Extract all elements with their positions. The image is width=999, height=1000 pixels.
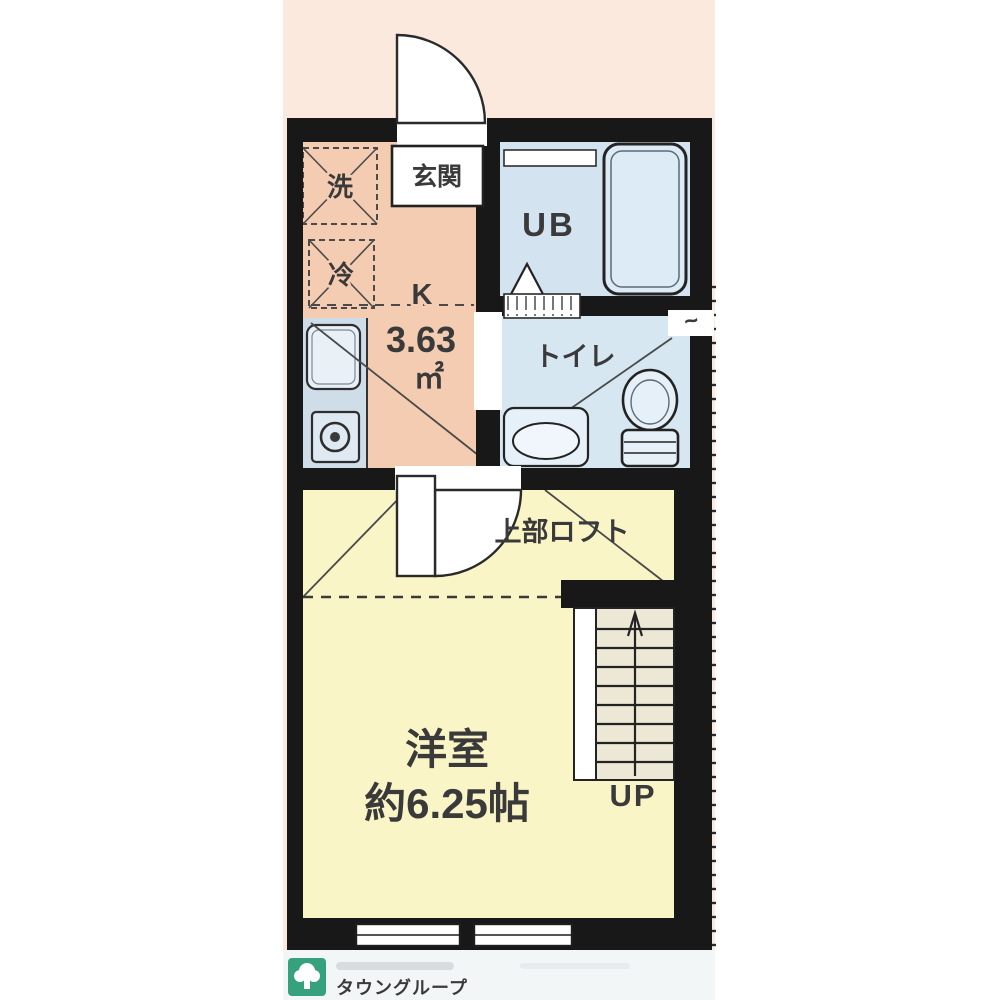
western-room-label: 洋室 bbox=[405, 726, 489, 773]
kitchen-area-value: 3.63 bbox=[386, 319, 456, 360]
toilet-label: トイレ bbox=[535, 342, 616, 372]
stairs-up-label: UP bbox=[609, 778, 656, 813]
floorplan-drawing: ~ 玄関 UP K 3.63 ㎡ 洗 冷 bbox=[0, 0, 999, 1000]
wall-right-lower bbox=[674, 468, 712, 952]
brand-name: タウングループ bbox=[336, 977, 468, 998]
kitchen-sink bbox=[307, 325, 360, 389]
wall-stairs-header bbox=[561, 580, 674, 608]
unit-bath-label: UB bbox=[522, 206, 576, 243]
footer-strip: タウングループ bbox=[283, 950, 715, 1000]
stove-burner bbox=[312, 412, 359, 462]
toilet-door-opening bbox=[474, 312, 502, 410]
wall-left bbox=[287, 118, 303, 952]
kitchen-label: K bbox=[412, 279, 433, 311]
floorplan-page: ~ 玄関 UP K 3.63 ㎡ 洗 冷 bbox=[0, 0, 999, 1000]
toilet-sink bbox=[504, 408, 588, 466]
entrance-label: 玄関 bbox=[412, 162, 462, 191]
kitchen-area-unit: ㎡ bbox=[414, 361, 444, 395]
window-bottom-right bbox=[474, 924, 572, 946]
bath-shelf bbox=[504, 150, 596, 166]
fridge-label: 冷 bbox=[328, 260, 354, 290]
washer-label: 洗 bbox=[327, 172, 353, 202]
toilet-bowl bbox=[622, 370, 678, 466]
wall-right-upper bbox=[690, 118, 712, 478]
stairs bbox=[574, 608, 674, 780]
wall-top bbox=[287, 118, 712, 142]
western-room-size: 約6.25帖 bbox=[364, 780, 530, 827]
loft-label: 上部ロフト bbox=[495, 516, 630, 547]
bath-door-track bbox=[504, 294, 580, 318]
brand-tagline-blur bbox=[336, 962, 454, 970]
bathtub bbox=[604, 144, 686, 294]
window-bottom-left bbox=[356, 924, 460, 946]
footer-faint-text-blur bbox=[520, 963, 630, 969]
